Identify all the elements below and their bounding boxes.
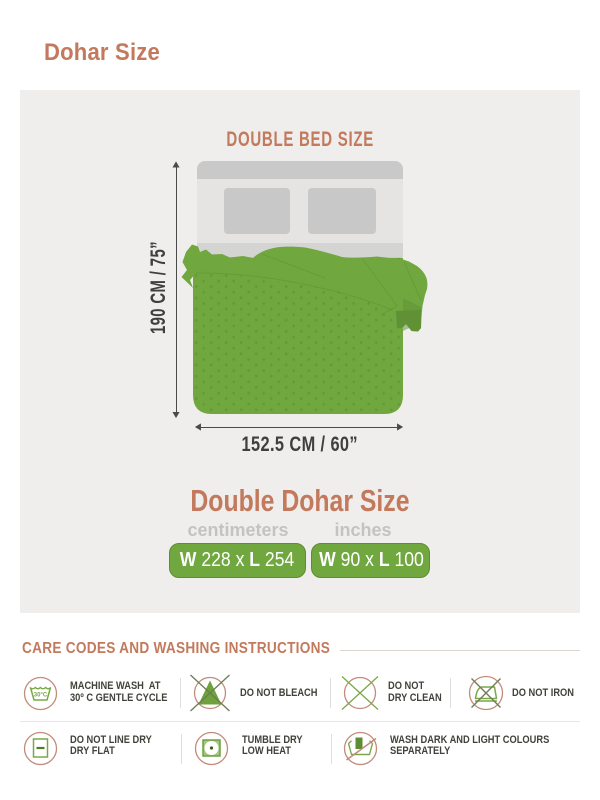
svg-text:190 CM / 75”: 190 CM / 75” (147, 241, 170, 334)
svg-text:152.5 CM / 60”: 152.5 CM / 60” (242, 432, 359, 455)
svg-text:30°C: 30°C (34, 693, 48, 699)
